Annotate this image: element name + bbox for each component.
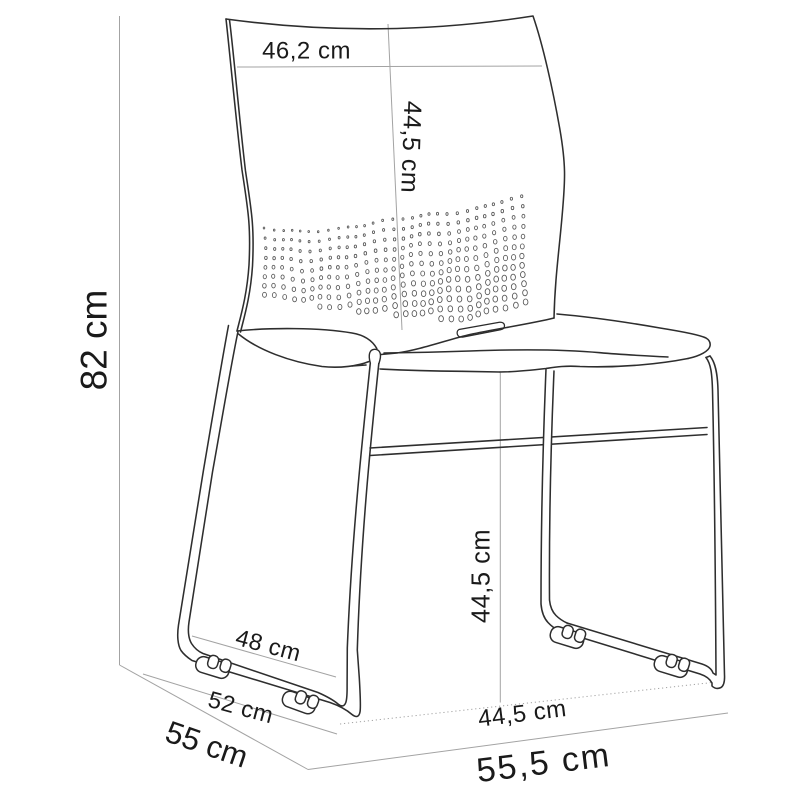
svg-text:82 cm: 82 cm xyxy=(73,290,114,391)
svg-text:44,5 cm: 44,5 cm xyxy=(395,100,426,193)
svg-text:44,5 cm: 44,5 cm xyxy=(468,529,496,623)
svg-text:46,2 cm: 46,2 cm xyxy=(262,38,351,65)
